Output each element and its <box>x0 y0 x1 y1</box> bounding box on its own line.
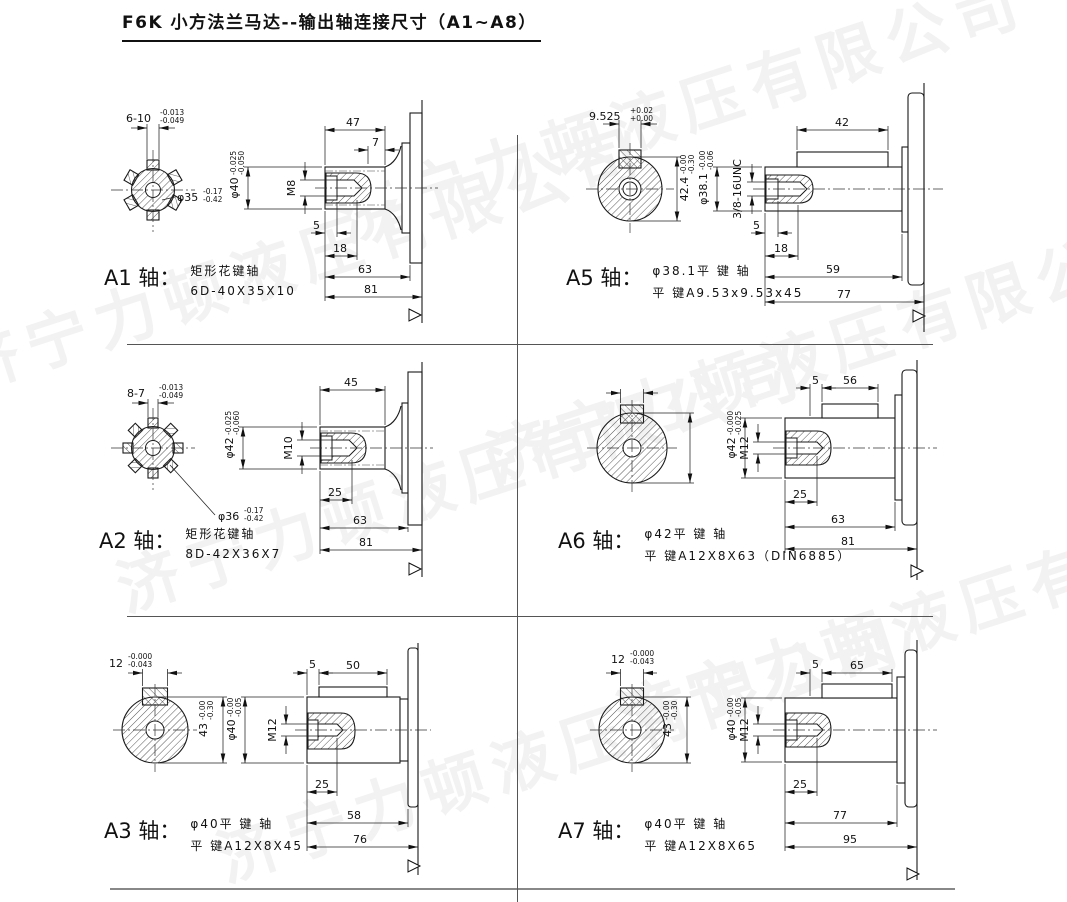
a7-label-name: A7 轴： <box>558 815 634 845</box>
svg-text:-0.049: -0.049 <box>160 116 184 125</box>
a7-label: A7 轴： φ40平 键 轴平 键A12X8X65 <box>558 815 757 854</box>
a6-label-name: A6 轴： <box>558 525 634 555</box>
svg-text:-0.42: -0.42 <box>203 195 223 204</box>
a7-thread-dim: M12 <box>738 718 751 742</box>
svg-text:-0.05: -0.05 <box>734 697 743 717</box>
svg-text:3/8-16UNC: 3/8-16UNC <box>731 159 744 219</box>
svg-text:42.4: 42.4 <box>678 177 691 202</box>
svg-text:-0.043: -0.043 <box>128 660 152 669</box>
a6-desc-line2: 平 键A12X8X63（DIN6885） <box>644 547 851 564</box>
svg-text:43: 43 <box>661 723 674 737</box>
a5-label: A5 轴： φ38.1平 键 轴平 键A9.53x9.53x45 <box>566 262 803 301</box>
a5-desc-line2: 平 键A9.53x9.53x45 <box>652 284 803 301</box>
a7-t1-dim: 5 <box>812 658 819 671</box>
svg-text:-0.025: -0.025 <box>734 411 743 435</box>
a1-label-name: A1 轴： <box>104 262 180 292</box>
a1-thread-dim: M8 <box>285 180 298 197</box>
a3-shaft-dia-dim: φ40 -0.00 -0.05 <box>225 697 243 740</box>
a3-b3-dim: 76 <box>353 833 367 846</box>
a1-b3-dim: 63 <box>358 263 372 276</box>
a2-b1-dim: 25 <box>328 486 342 499</box>
projection-symbol <box>409 309 421 321</box>
a6-key-section <box>587 400 677 492</box>
a5-key-section <box>586 143 674 233</box>
a5-key-width-dim: 9.525 <box>589 110 621 123</box>
svg-text:φ42: φ42 <box>223 437 236 458</box>
a6-t1-dim: 5 <box>812 374 819 387</box>
a1-b2-dim: 18 <box>333 242 347 255</box>
svg-text:-0.42: -0.42 <box>244 514 264 523</box>
a6-t2-dim: 56 <box>843 374 857 387</box>
a1-b4-dim: 81 <box>364 283 378 296</box>
a6-label: A6 轴： φ42平 键 轴平 键A12X8X63（DIN6885） <box>558 525 851 564</box>
a2-spline-dia-dim: φ36 <box>218 510 239 523</box>
a5-desc-line1: φ38.1平 键 轴 <box>652 262 803 279</box>
a2-thread-dim: M10 <box>282 436 295 460</box>
a3-b1-dim: 25 <box>315 778 329 791</box>
a5-b1-dim: 5 <box>753 219 760 232</box>
a5-shaft-dia-dim: φ38.1 -0.00 -0.06 <box>697 150 715 205</box>
a7-b1-dim: 25 <box>793 778 807 791</box>
a1-shaft-dia-dim: φ40 -0.025 -0.050 <box>228 151 246 199</box>
a3-key-width-dim: 12 <box>109 657 123 670</box>
a1-b1-dim: 5 <box>313 219 320 232</box>
page-title: F6K 小方法兰马达--输出轴连接尺寸（A1~A8） <box>122 8 541 42</box>
a6-drawing: 5 56 φ42 -0.000 -0.025 M12 25 63 81 <box>555 355 965 605</box>
a5-section-height-dim: 42.4 -0.00 -0.30 <box>678 154 696 201</box>
svg-text:M12: M12 <box>738 436 751 460</box>
drawing-sheet: 济宁力顿液压有限公司 济宁力顿液压有限公司 济宁力顿液压有限公司 济宁力顿液压有… <box>0 0 1067 902</box>
a2-shaft-dia-dim: φ42 -0.025 -0.060 <box>223 411 241 459</box>
svg-text:-0.05: -0.05 <box>234 697 243 717</box>
a3-desc-line1: φ40平 键 轴 <box>190 815 303 832</box>
a1-spline-dia-dim: φ35 <box>177 191 198 204</box>
a7-desc-line2: 平 键A12X8X65 <box>644 837 757 854</box>
svg-text:-0.30: -0.30 <box>687 154 696 174</box>
a2-label: A2 轴： 矩形花键轴8D-42X36X7 <box>99 525 281 561</box>
svg-text:M8: M8 <box>285 180 298 197</box>
a1-len-dim: 47 <box>346 116 360 129</box>
a2-desc-line1: 矩形花键轴 <box>185 525 281 542</box>
svg-text:M12: M12 <box>266 718 279 742</box>
a7-b2-dim: 77 <box>833 809 847 822</box>
svg-text:-0.043: -0.043 <box>630 657 654 666</box>
a3-b2-dim: 58 <box>347 809 361 822</box>
svg-text:-0.06: -0.06 <box>706 150 715 170</box>
a1-groove-dim: 7 <box>372 136 379 149</box>
a2-spline-section <box>111 408 195 490</box>
svg-text:φ40: φ40 <box>225 719 238 740</box>
projection-symbol <box>913 310 925 322</box>
a7-key-width-dim: 12 <box>611 653 625 666</box>
a5-b2-dim: 18 <box>774 242 788 255</box>
a7-section-height-dim: 43 -0.00 -0.30 <box>661 700 679 737</box>
a7-b3-dim: 95 <box>843 833 857 846</box>
svg-text:43: 43 <box>197 723 210 737</box>
a6-desc-line1: φ42平 键 轴 <box>644 525 851 542</box>
svg-text:φ38.1: φ38.1 <box>697 173 710 205</box>
divider-row2 <box>127 616 933 617</box>
svg-text:φ42: φ42 <box>725 437 738 458</box>
svg-text:-0.050: -0.050 <box>237 151 246 175</box>
a3-label: A3 轴： φ40平 键 轴平 键A12X8X45 <box>104 815 303 854</box>
a5-b4-dim: 77 <box>837 288 851 301</box>
svg-text:φ40: φ40 <box>228 177 241 198</box>
a1-label: A1 轴： 矩形花键轴6D-40X35X10 <box>104 262 296 298</box>
a6-thread-dim: M12 <box>738 436 751 460</box>
svg-text:+0.00: +0.00 <box>630 114 653 123</box>
svg-text:φ40: φ40 <box>725 719 738 740</box>
svg-text:M12: M12 <box>738 718 751 742</box>
a7-t2-dim: 65 <box>850 659 864 672</box>
a2-b3-dim: 81 <box>359 536 373 549</box>
a3-t2-dim: 50 <box>346 659 360 672</box>
a1-spline-width-dim: 6-10 <box>126 112 151 125</box>
a1-desc-line1: 矩形花键轴 <box>190 262 295 279</box>
a7-desc-line1: φ40平 键 轴 <box>644 815 757 832</box>
a3-t1-dim: 5 <box>309 658 316 671</box>
divider-vertical <box>517 135 518 902</box>
svg-text:-0.30: -0.30 <box>206 700 215 720</box>
a2-desc-line2: 8D-42X36X7 <box>185 547 281 561</box>
a3-label-name: A3 轴： <box>104 815 180 845</box>
a2-len-dim: 45 <box>344 376 358 389</box>
svg-text:-0.060: -0.060 <box>232 411 241 435</box>
a3-thread-dim: M12 <box>266 718 279 742</box>
svg-text:M10: M10 <box>282 436 295 460</box>
svg-text:-0.30: -0.30 <box>670 700 679 720</box>
a2-drawing: 8-7 -0.013 -0.049 φ36 -0.17 -0.42 45 φ42… <box>95 355 435 605</box>
a5-thread-dim: 3/8-16UNC <box>731 159 744 219</box>
projection-symbol <box>409 563 421 575</box>
svg-text:-0.049: -0.049 <box>159 391 183 400</box>
a3-section-height-dim: 43 -0.00 -0.30 <box>197 700 215 737</box>
a5-label-name: A5 轴： <box>566 262 642 292</box>
a6-b1-dim: 25 <box>793 488 807 501</box>
a2-spline-width-dim: 8-7 <box>127 387 145 400</box>
divider-row1 <box>127 344 933 345</box>
a5-len-dim: 42 <box>835 116 849 129</box>
a5-b3-dim: 59 <box>826 263 840 276</box>
a3-desc-line2: 平 键A12X8X45 <box>190 837 303 854</box>
a2-label-name: A2 轴： <box>99 525 175 555</box>
a2-b2-dim: 63 <box>353 514 367 527</box>
a1-desc-line2: 6D-40X35X10 <box>190 284 295 298</box>
